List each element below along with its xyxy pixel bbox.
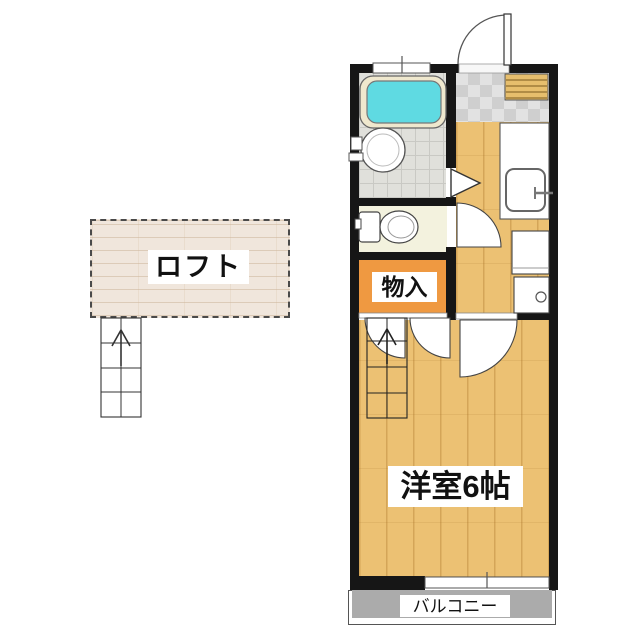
- entrance-door-leaf: [504, 14, 511, 65]
- kitchen-hall-floor: [456, 122, 549, 318]
- wall-bath-east: [446, 64, 456, 168]
- western-room-floor: [359, 320, 549, 577]
- wall-bath-toilet: [350, 198, 456, 206]
- wall-storage-east: [446, 247, 456, 320]
- western-room-label: 洋室6帖: [388, 466, 523, 507]
- wall-top-mid: [430, 64, 459, 73]
- storage-door-line: [359, 313, 447, 318]
- storage-label: 物入: [372, 272, 437, 302]
- bathroom-window: [373, 63, 430, 73]
- entrance-tile-floor: [456, 73, 549, 124]
- entrance-door-arc: [458, 15, 507, 64]
- loft-ladder-frame: [101, 318, 141, 417]
- toilet-room-floor: [359, 206, 447, 252]
- wall-toilet-storage: [350, 252, 456, 260]
- loft-label: ロフト: [148, 250, 249, 284]
- balcony-label: バルコニー: [400, 595, 510, 617]
- wall-bath-east-stub: [446, 197, 456, 203]
- wall-top-right: [509, 64, 558, 73]
- wall-top-left: [350, 64, 373, 73]
- wall-west: [350, 64, 359, 590]
- bathroom-floor: [359, 73, 446, 198]
- balcony-window: [425, 577, 549, 588]
- floorplan-canvas: ロフト 物入 洋室6帖 バルコニー: [0, 0, 640, 640]
- loft-ladder: [101, 318, 141, 417]
- entrance-threshold: [459, 64, 509, 73]
- wall-south-left: [350, 576, 425, 590]
- entrance-door: [458, 14, 511, 73]
- wall-east: [549, 64, 558, 590]
- up-arrow-icon: [112, 330, 130, 346]
